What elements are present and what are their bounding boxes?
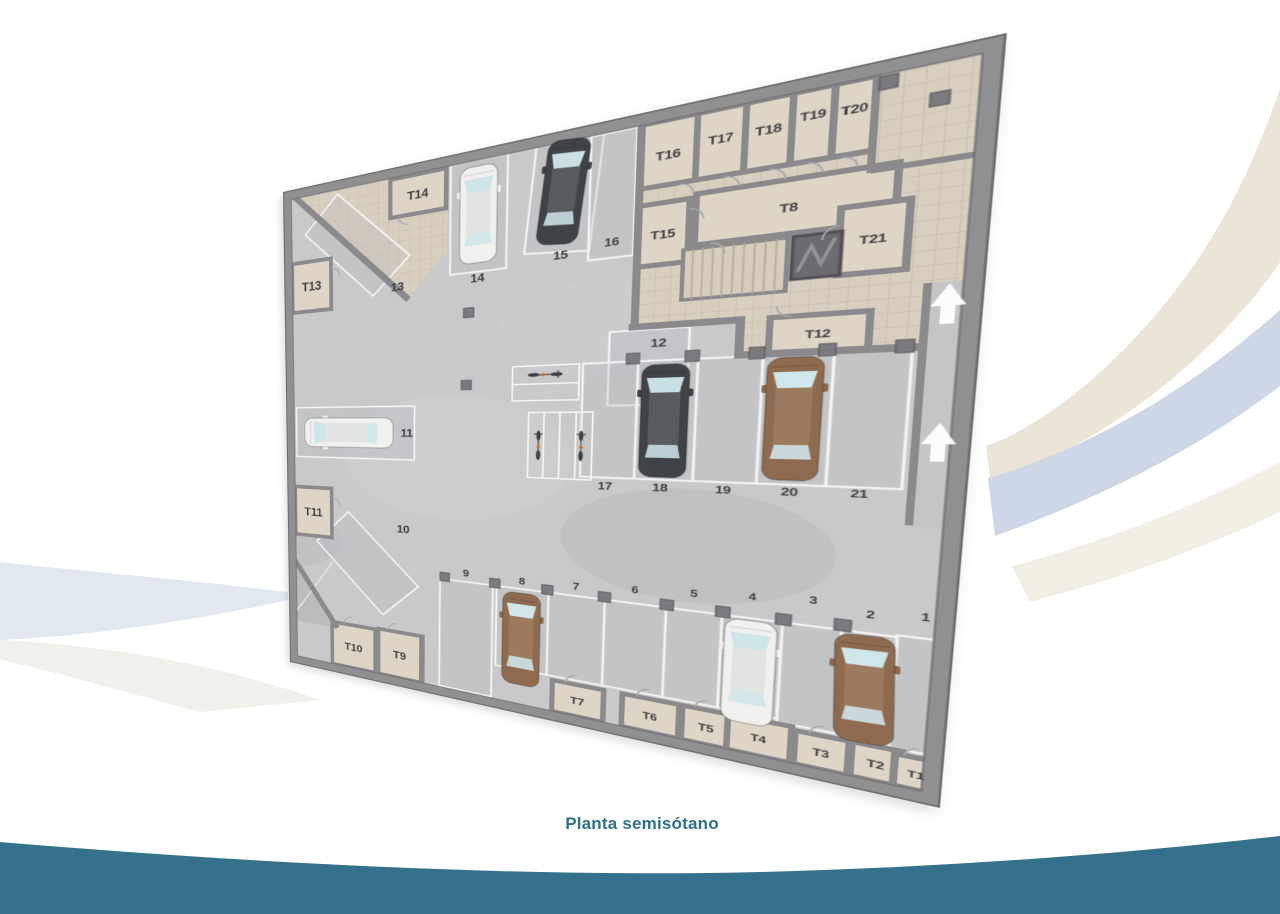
- car-spot-2: [828, 632, 901, 749]
- parking-spot-label-1: 1: [921, 613, 932, 625]
- parking-spot-label-9: 9: [463, 567, 470, 579]
- elevator: [791, 231, 843, 280]
- right-ribbons: [986, 88, 1280, 602]
- parking-spot-label-21: 21: [850, 490, 868, 502]
- parking-spot-label-5: 5: [690, 587, 698, 600]
- stall-7: [547, 592, 605, 685]
- stall-5: [662, 608, 722, 708]
- stall-9: [439, 579, 493, 697]
- parking-spot-label-10: 10: [397, 523, 410, 537]
- parking-spot-label-3: 3: [809, 596, 818, 607]
- storage-room-label-T9: T9: [393, 649, 407, 664]
- stall-21: [826, 349, 913, 489]
- car-spot-11: [305, 415, 393, 451]
- parking-spot-label-4: 4: [748, 593, 756, 604]
- left-ribbon-warm-icon: [0, 640, 320, 712]
- plan-title: Planta semisótano: [565, 814, 719, 834]
- car-spot-18: [634, 363, 695, 478]
- storage-room-label-T12: T12: [804, 329, 831, 342]
- storage-room-label-T11: T11: [304, 506, 322, 520]
- car-spot-4: [716, 617, 783, 729]
- storage-room-label-T13: T13: [302, 279, 321, 295]
- left-ribbon-blue-icon: [0, 562, 288, 640]
- parking-spot-label-8: 8: [519, 576, 526, 588]
- parking-spot-label-2: 2: [866, 610, 876, 622]
- car-spot-8: [498, 590, 544, 689]
- stairs: [681, 237, 788, 300]
- parking-spot-label-19: 19: [715, 483, 731, 497]
- parking-spot-label-14: 14: [470, 271, 485, 286]
- left-ribbons: [0, 562, 320, 712]
- stall-3: [777, 622, 842, 733]
- parking-spot-label-11: 11: [401, 428, 414, 441]
- parking-spot-label-6: 6: [631, 583, 638, 596]
- parking-spot-label-12: 12: [650, 336, 667, 350]
- stall-6: [602, 600, 666, 697]
- parking-spot-label-15: 15: [553, 247, 569, 263]
- parking-spot-label-20: 20: [780, 485, 798, 499]
- parking-spot-label-16: 16: [604, 235, 620, 250]
- stall-19: [693, 356, 764, 484]
- parking-spot-label-17: 17: [597, 480, 613, 493]
- parking-spot-label-18: 18: [652, 482, 669, 495]
- parking-spot-label-7: 7: [572, 581, 580, 593]
- teal-band: [0, 836, 1280, 914]
- parking-spot-label-13: 13: [391, 280, 405, 295]
- page: 123456789101112131415161718192021 T1T2T3…: [0, 0, 1280, 914]
- storage-room-label-T8: T8: [779, 199, 798, 216]
- stall-17: [580, 361, 638, 478]
- car-spot-14: [456, 161, 501, 265]
